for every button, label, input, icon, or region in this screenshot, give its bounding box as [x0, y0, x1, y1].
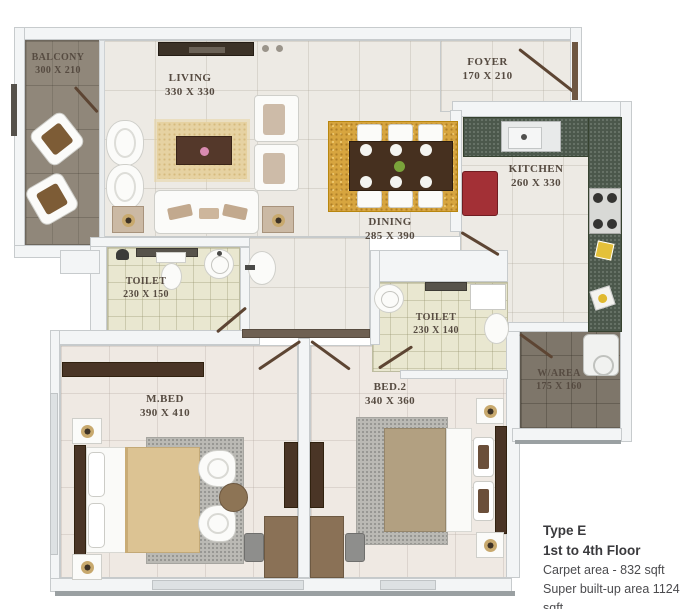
- toilet-bowl: [484, 313, 509, 344]
- bed-blanket: [125, 447, 200, 553]
- shower-tray: [470, 284, 506, 310]
- duct-niche: [60, 250, 100, 274]
- foyer-label: FOYER170 X 210: [445, 56, 530, 83]
- refrigerator: [462, 171, 498, 216]
- desk-chair: [244, 533, 264, 562]
- armchair: [254, 95, 299, 142]
- floor-plan: BALCONY300 X 210 LIVING330 X 330 FOYER17…: [0, 0, 700, 609]
- wardrobe: [284, 442, 298, 508]
- toilet2-label: TOILET230 X 140: [400, 312, 472, 337]
- bed-headboard: [74, 445, 86, 555]
- wall-toilet2-bottom: [400, 370, 508, 379]
- decor-item: [276, 45, 283, 52]
- desk-chair: [345, 533, 365, 562]
- side-table: [262, 206, 294, 233]
- dining-table: [349, 141, 453, 191]
- corridor-threshold: [242, 329, 370, 338]
- nightstand: [476, 398, 504, 424]
- lamp-icon: [122, 214, 135, 227]
- side-table: [112, 206, 144, 233]
- armchair: [254, 144, 299, 191]
- bed-blanket: [384, 428, 446, 532]
- plan-info-block: Type E 1st to 4th Floor Carpet area - 83…: [543, 521, 698, 609]
- toilet2-shelf: [425, 282, 467, 291]
- pillow: [473, 437, 494, 477]
- bedroom-armchair: [198, 450, 236, 487]
- entrance-door-jamb: [572, 42, 578, 100]
- dining-chair: [357, 124, 382, 142]
- washbasin: [204, 249, 234, 279]
- desk: [264, 516, 298, 578]
- kitchen-sink: [501, 121, 561, 152]
- nightstand: [476, 532, 504, 558]
- pillow: [473, 481, 494, 521]
- wall-toilet1-top: [90, 237, 250, 247]
- kitchen-label: KITCHEN260 X 330: [496, 163, 576, 190]
- living-label: LIVING330 X 330: [145, 72, 235, 99]
- toilet1-label: TOILET230 X 150: [110, 276, 182, 301]
- wardrobe: [62, 362, 204, 377]
- nightstand: [72, 418, 102, 444]
- wash-area-label: W/AREA175 X 160: [520, 368, 598, 393]
- window-mbed-bottom: [152, 580, 304, 590]
- dining-chair: [388, 190, 413, 208]
- dining-label: DINING285 X 390: [350, 216, 430, 243]
- washbasin: [374, 284, 404, 313]
- window-mbed-left: [50, 393, 58, 555]
- lounge-chair: [106, 120, 144, 166]
- carpet-area: Carpet area - 832 sqft: [543, 561, 698, 580]
- desk: [310, 516, 344, 578]
- bedroom2-label: BED.2340 X 360: [350, 381, 430, 408]
- super-builtup-area: Super built-up area 1124 sqft: [543, 580, 698, 609]
- lamp-icon: [81, 561, 94, 574]
- balcony-rail: [11, 84, 17, 136]
- tv-unit: [158, 42, 254, 56]
- window-bed2-bottom: [380, 580, 436, 590]
- lamp-icon: [484, 405, 497, 418]
- wall-bed2-right: [506, 322, 520, 578]
- bed-mattress: [446, 428, 472, 532]
- wall-toilet2-top: [372, 250, 508, 282]
- lamp-icon: [81, 425, 94, 438]
- wardrobe: [310, 442, 324, 508]
- dining-chair: [418, 190, 443, 208]
- pillow: [88, 503, 105, 548]
- coffee-table: [176, 136, 232, 165]
- plinth-shadow-bottom: [55, 591, 515, 596]
- pillow: [88, 452, 105, 497]
- stove: [589, 188, 621, 234]
- sofa: [154, 190, 259, 234]
- kitchen-item: [594, 240, 614, 260]
- dining-chair: [357, 190, 382, 208]
- master-bedroom-label: M.BED390 X 410: [125, 393, 205, 420]
- balcony-label: BALCONY300 X 210: [24, 52, 92, 77]
- dining-chair: [418, 124, 443, 142]
- wc-cistern: [156, 252, 186, 263]
- lamp-icon: [484, 539, 497, 552]
- dining-chair: [388, 124, 413, 142]
- plan-type: Type E: [543, 521, 698, 541]
- round-table: [219, 483, 248, 512]
- plinth-shadow-warea: [515, 440, 621, 444]
- wall-kitchen-top: [452, 101, 632, 117]
- decor-item: [262, 45, 269, 52]
- wall-top: [14, 27, 580, 40]
- corridor-washbasin: [248, 251, 276, 285]
- bed-headboard: [495, 426, 507, 534]
- plan-floors: 1st to 4th Floor: [543, 541, 698, 561]
- shower-icon: [116, 249, 129, 260]
- lamp-icon: [272, 214, 285, 227]
- nightstand: [72, 554, 102, 580]
- wall-balcony-divider: [99, 40, 105, 245]
- wall-mbed-top: [50, 330, 260, 345]
- wall-bedroom-divider: [298, 338, 310, 578]
- lounge-chair: [106, 164, 144, 210]
